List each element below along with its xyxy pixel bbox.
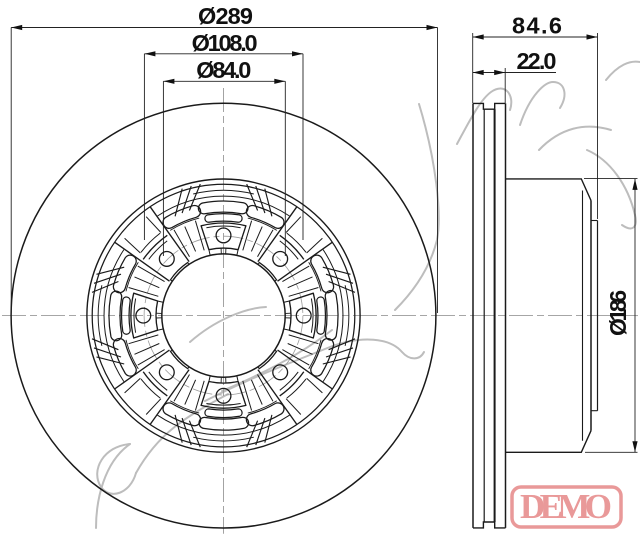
svg-text:84.6: 84.6 <box>512 13 562 39</box>
svg-text:Ø108.0: Ø108.0 <box>192 30 258 56</box>
svg-text:Ø289: Ø289 <box>198 3 253 29</box>
svg-text:Ø84.0: Ø84.0 <box>196 57 251 83</box>
svg-text:DEMO: DEMO <box>520 487 612 526</box>
svg-text:Ø186: Ø186 <box>605 290 631 336</box>
svg-text:22.0: 22.0 <box>517 48 557 74</box>
